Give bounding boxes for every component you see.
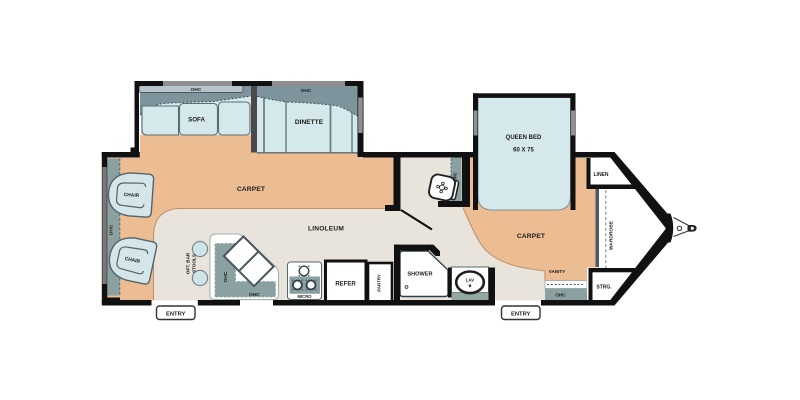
svg-text:60 X 75: 60 X 75: [513, 148, 534, 154]
svg-text:STOOLS: STOOLS: [191, 254, 196, 273]
svg-text:OPT. BAR: OPT. BAR: [186, 252, 191, 274]
svg-text:ENTRY: ENTRY: [511, 312, 531, 318]
svg-text:OHC: OHC: [555, 292, 566, 297]
svg-text:LINEN: LINEN: [594, 172, 609, 178]
svg-text:CARPET: CARPET: [237, 186, 265, 193]
svg-text:LAV: LAV: [466, 277, 475, 282]
svg-text:MICRO: MICRO: [298, 294, 313, 299]
svg-text:VANITY: VANITY: [549, 269, 566, 274]
svg-text:DINETTE: DINETTE: [295, 119, 324, 126]
svg-text:LINOLEUM: LINOLEUM: [308, 226, 344, 233]
svg-text:SOFA: SOFA: [188, 117, 205, 124]
svg-text:QUEEN BED: QUEEN BED: [506, 135, 542, 141]
svg-text:OHC: OHC: [249, 292, 260, 298]
svg-text:STRG.: STRG.: [596, 285, 612, 291]
svg-text:PANTRY: PANTRY: [377, 274, 382, 292]
svg-text:ENTRY: ENTRY: [166, 312, 186, 318]
svg-text:REFER: REFER: [335, 282, 356, 288]
svg-text:OHC: OHC: [109, 224, 115, 235]
svg-text:CHAIR: CHAIR: [123, 192, 139, 199]
svg-text:OHC: OHC: [223, 271, 229, 282]
svg-text:OHC: OHC: [301, 88, 312, 94]
svg-text:CARPET: CARPET: [517, 233, 545, 240]
svg-text:WARDROBE: WARDROBE: [609, 220, 615, 250]
svg-text:OHC: OHC: [191, 87, 202, 93]
svg-text:SHOWER: SHOWER: [407, 272, 432, 278]
